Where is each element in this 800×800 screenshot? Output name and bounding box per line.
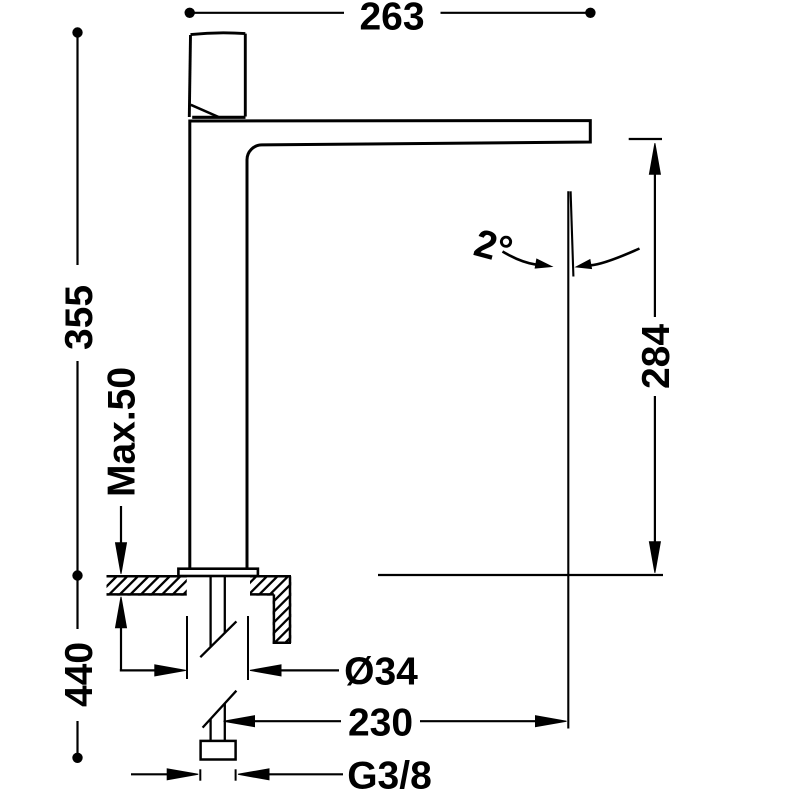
svg-text:230: 230 [348, 701, 413, 744]
svg-text:Max.50: Max.50 [101, 367, 144, 497]
svg-text:Ø34: Ø34 [344, 651, 418, 694]
svg-text:263: 263 [359, 0, 424, 39]
svg-text:G3/8: G3/8 [347, 754, 432, 797]
svg-text:440: 440 [58, 642, 101, 707]
svg-text:355: 355 [58, 285, 101, 350]
svg-text:284: 284 [635, 324, 678, 389]
